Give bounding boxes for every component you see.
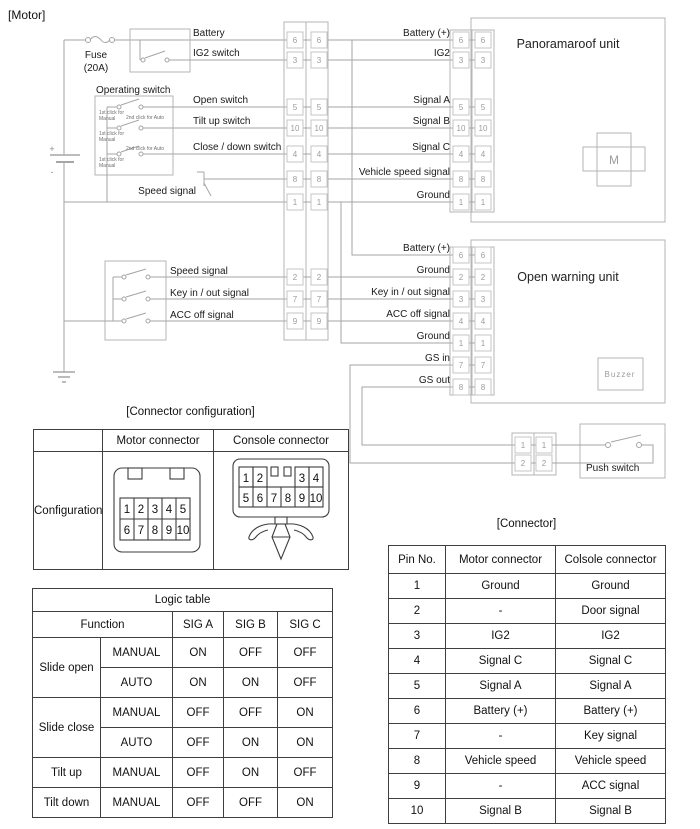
switch-contact-icon xyxy=(117,105,121,109)
click-note: 2nd click for Auto xyxy=(126,146,164,152)
pin-number: 3 xyxy=(481,56,486,65)
function-mode: MANUAL xyxy=(101,638,173,668)
unit-box xyxy=(471,240,665,403)
pin-box xyxy=(287,120,303,136)
table-row: 9-ACC signal xyxy=(389,774,666,799)
pin-box xyxy=(453,269,469,285)
motor-signal: Ground xyxy=(446,574,556,599)
pin-number: 7 xyxy=(317,295,322,304)
push-switch-circuit: 1 1 2 2 Push switch xyxy=(512,424,665,478)
pin-box xyxy=(453,32,469,48)
pin-number: 3 xyxy=(459,56,464,65)
console-connector-header: Colsole connector xyxy=(556,546,666,574)
function-mode: AUTO xyxy=(101,668,173,698)
console-signal: Ground xyxy=(556,574,666,599)
motor-signal: Vehicle speed xyxy=(446,749,556,774)
pin-box xyxy=(453,357,469,373)
sig-c-value: ON xyxy=(278,728,333,758)
pin-box xyxy=(453,335,469,351)
wire-label: Signal A xyxy=(413,95,450,106)
push-switch-label: Push switch xyxy=(586,463,639,474)
sig-a-value: OFF xyxy=(173,698,224,728)
motor-signal: Signal A xyxy=(446,674,556,699)
switch-blade-icon xyxy=(145,51,165,58)
motor-connector-drawing: 1 2 3 4 5 6 7 8 9 10 xyxy=(112,464,204,558)
push-switch-box xyxy=(580,424,665,478)
sig-a-value: OFF xyxy=(173,758,224,788)
pin-box xyxy=(453,146,469,162)
function-group: Slide open xyxy=(33,638,101,698)
pin-number: 2 xyxy=(481,273,486,282)
pin-number: 2 xyxy=(257,473,263,485)
pin-number: 1 xyxy=(317,198,322,207)
wire xyxy=(350,365,515,463)
pin-number: 3 xyxy=(293,56,298,65)
close-down-label: Close / down switch xyxy=(193,142,281,153)
logic-header-sig-a: SIG A xyxy=(173,612,224,638)
click-note: 1st click for xyxy=(99,131,124,137)
console-signal: Key signal xyxy=(556,724,666,749)
sig-c-value: OFF xyxy=(278,668,333,698)
pin-number: 6 xyxy=(317,36,322,45)
wire-label: IG2 xyxy=(434,48,451,59)
click-note: Manual xyxy=(99,163,115,169)
console-connector-drawing: 1 2 3 4 5 6 7 8 9 10 xyxy=(229,457,333,565)
pin-box xyxy=(311,313,327,329)
ig2-switch-box: Battery IG2 switch xyxy=(130,28,287,72)
config-header-console: Console connector xyxy=(214,430,349,452)
unit-title: Panoramaroof unit xyxy=(517,37,620,51)
motor-signal: Signal B xyxy=(446,799,556,824)
switch-blade-icon xyxy=(121,146,139,152)
pin-number: 5 xyxy=(243,493,249,505)
pin-number: 2 xyxy=(459,273,464,282)
motor-signal: - xyxy=(446,774,556,799)
pin-number: 1 xyxy=(459,339,464,348)
logic-table: Logic table Function SIG A SIG B SIG C S… xyxy=(32,588,333,818)
speed-signal-label: Speed signal xyxy=(170,266,228,277)
sig-b-value: ON xyxy=(224,758,278,788)
motor-signal: Battery (+) xyxy=(446,699,556,724)
wire xyxy=(362,387,515,445)
switch-contact-icon xyxy=(122,319,126,323)
pin-number: 9 xyxy=(166,525,172,537)
sig-a-value: OFF xyxy=(173,728,224,758)
pin-number: 8 xyxy=(293,175,298,184)
pin-box xyxy=(311,194,327,210)
pin-box xyxy=(311,291,327,307)
motor-icon xyxy=(597,133,631,186)
sig-c-value: OFF xyxy=(278,638,333,668)
pin-box xyxy=(311,146,327,162)
table-row: 8Vehicle speedVehicle speed xyxy=(389,749,666,774)
pin-number: 1 xyxy=(542,441,547,450)
motor-signal: - xyxy=(446,599,556,624)
pin-box xyxy=(475,32,491,48)
connector-table: Pin No. Motor connector Colsole connecto… xyxy=(388,545,666,824)
switch-contact-icon xyxy=(122,275,126,279)
pin-box xyxy=(311,99,327,115)
table-row: 2-Door signal xyxy=(389,599,666,624)
pin-number: 4 xyxy=(317,150,322,159)
console-signal: Signal A xyxy=(556,674,666,699)
pin-number: 3 xyxy=(299,473,305,485)
console-signal: Vehicle speed xyxy=(556,749,666,774)
pin-number: 2 xyxy=(317,273,322,282)
clip-anchor xyxy=(272,524,290,559)
clip-wing xyxy=(287,523,313,539)
pin-number: 4 xyxy=(459,150,464,159)
pin-number: 6 xyxy=(257,493,263,505)
sig-c-value: OFF xyxy=(278,758,333,788)
wire-label: GS out xyxy=(419,375,450,386)
pin-number: 4 xyxy=(459,317,464,326)
wire-label: Ground xyxy=(417,331,450,342)
connector-shell xyxy=(284,22,306,340)
ig2-wire-label: IG2 switch xyxy=(193,48,240,59)
switch-contact-icon xyxy=(606,443,611,448)
table-row: 5Signal ASignal A xyxy=(389,674,666,699)
click-note: 1st click for xyxy=(99,110,124,116)
clip-wing xyxy=(249,523,275,539)
switch-contact-icon xyxy=(146,297,150,301)
pin-number: 8 xyxy=(459,175,464,184)
pin-number: 5 xyxy=(459,103,464,112)
switch-box xyxy=(130,29,190,72)
pin-box xyxy=(475,120,491,136)
pin-number: 5 xyxy=(481,103,486,112)
pin-number: 9 xyxy=(299,493,305,505)
motor-signal: Signal C xyxy=(446,649,556,674)
pin-box xyxy=(475,357,491,373)
switch-blade-icon xyxy=(611,435,641,442)
click-note: 2nd click for Auto xyxy=(126,115,164,121)
speed-signal-source: Speed signal xyxy=(138,172,287,197)
fuse-rating: (20A) xyxy=(84,63,108,74)
logic-header-sig-b: SIG B xyxy=(224,612,278,638)
pin-box xyxy=(311,52,327,68)
panoramaroof-unit: Panoramaroof unit M 6 6 3 3 5 5 10 10 4 … xyxy=(359,18,665,222)
pin-box xyxy=(287,194,303,210)
sig-b-value: OFF xyxy=(224,788,278,818)
unit-box xyxy=(471,18,665,222)
pin-no: 3 xyxy=(389,624,446,649)
motor-letter: M xyxy=(609,153,619,167)
pin-number: 5 xyxy=(317,103,322,112)
pin-no: 6 xyxy=(389,699,446,724)
pin-no: 9 xyxy=(389,774,446,799)
pin-box xyxy=(311,269,327,285)
logic-header-sig-c: SIG C xyxy=(278,612,333,638)
console-signal: IG2 xyxy=(556,624,666,649)
fuse-label: Fuse xyxy=(85,50,108,61)
battery-wire-label: Battery xyxy=(193,28,225,39)
pin-box xyxy=(287,32,303,48)
tilt-up-label: Tilt up switch xyxy=(193,116,250,127)
pin-no: 8 xyxy=(389,749,446,774)
sig-a-value: OFF xyxy=(173,788,224,818)
speed-signal-label: Speed signal xyxy=(138,186,196,197)
pin-number: 10 xyxy=(291,124,300,133)
pin-box xyxy=(287,52,303,68)
pin-no: 2 xyxy=(389,599,446,624)
pin-number: 2 xyxy=(138,504,144,516)
operating-switch-title: Operating switch xyxy=(96,85,170,96)
harness-wires xyxy=(328,40,515,463)
pin-number: 6 xyxy=(459,36,464,45)
sig-a-value: ON xyxy=(173,638,224,668)
wire-label: Battery (+) xyxy=(403,28,450,39)
console-signal: Signal B xyxy=(556,799,666,824)
motor-icon xyxy=(583,147,645,171)
pin-number: 7 xyxy=(271,493,277,505)
key-in-out-label: Key in / out signal xyxy=(170,288,249,299)
fuse-icon xyxy=(90,37,110,43)
pin-box xyxy=(475,335,491,351)
switch-contact-icon xyxy=(139,126,143,130)
pin-box xyxy=(287,291,303,307)
switch-blade-icon xyxy=(126,291,146,297)
connector-shell xyxy=(306,22,328,340)
wire xyxy=(352,40,453,255)
pin-number: 2 xyxy=(293,273,298,282)
wire xyxy=(341,202,453,343)
housing-tab xyxy=(284,467,291,476)
pin-number: 6 xyxy=(293,36,298,45)
pin-box xyxy=(453,247,469,263)
connector-shell xyxy=(534,433,556,475)
sig-b-value: ON xyxy=(224,668,278,698)
click-note: Manual xyxy=(99,137,115,143)
pin-box xyxy=(453,291,469,307)
pin-box xyxy=(475,247,491,263)
switch-contact-icon xyxy=(122,297,126,301)
wire-label: Ground xyxy=(417,265,450,276)
logic-table-title: Logic table xyxy=(33,589,333,612)
pin-number: 9 xyxy=(317,317,322,326)
pin-box xyxy=(475,291,491,307)
wire-label: Signal C xyxy=(412,142,450,153)
sig-b-value: OFF xyxy=(224,638,278,668)
pin-number: 5 xyxy=(293,103,298,112)
pin-number: 8 xyxy=(285,493,291,505)
switch-contact-icon xyxy=(146,319,150,323)
function-group: Tilt up xyxy=(33,758,101,788)
wire-label: Battery (+) xyxy=(403,243,450,254)
wire-label: GS in xyxy=(425,353,450,364)
switch-contact-icon xyxy=(165,58,169,62)
pin-number: 1 xyxy=(481,339,486,348)
wire xyxy=(552,445,653,463)
pin-number: 6 xyxy=(481,36,486,45)
function-group: Tilt down xyxy=(33,788,101,818)
table-row: 7-Key signal xyxy=(389,724,666,749)
pin-box xyxy=(453,313,469,329)
connector-shell xyxy=(512,433,534,475)
wire-label: Signal B xyxy=(413,116,451,127)
table-row: 3IG2IG2 xyxy=(389,624,666,649)
pin-number: 10 xyxy=(310,493,323,505)
pin-box xyxy=(475,379,491,395)
wire-label: Ground xyxy=(417,190,450,201)
logic-header-function: Function xyxy=(33,612,173,638)
pin-number: 4 xyxy=(481,317,486,326)
pin-box xyxy=(287,99,303,115)
pin-number: 6 xyxy=(124,525,130,537)
pin-number: 3 xyxy=(459,295,464,304)
switch-contact-icon xyxy=(117,152,121,156)
pin-box xyxy=(453,379,469,395)
pin-box xyxy=(287,146,303,162)
pin-no: 7 xyxy=(389,724,446,749)
pin-no: 4 xyxy=(389,649,446,674)
pin-box xyxy=(536,437,552,453)
pin-no: 5 xyxy=(389,674,446,699)
pulse-icon xyxy=(204,183,211,196)
pin-box xyxy=(475,52,491,68)
table-row: 1GroundGround xyxy=(389,574,666,599)
console-switch-box: Speed signal Key in / out signal ACC off… xyxy=(64,261,287,340)
battery-minus-sign: - xyxy=(51,167,54,177)
function-mode: MANUAL xyxy=(101,698,173,728)
pin-number: 1 xyxy=(459,198,464,207)
pin-number: 4 xyxy=(313,473,320,485)
housing-tab xyxy=(271,467,278,476)
sig-a-value: ON xyxy=(173,668,224,698)
switch-contact-icon xyxy=(117,126,121,130)
connector-configuration-table: Motor connector Console connector Config… xyxy=(33,429,349,570)
pin-number: 10 xyxy=(479,124,488,133)
pin-box xyxy=(453,52,469,68)
motor-signal: IG2 xyxy=(446,624,556,649)
pin-number: 10 xyxy=(177,525,190,537)
pin-box xyxy=(475,313,491,329)
table-row: 4Signal CSignal C xyxy=(389,649,666,674)
pin-number: 10 xyxy=(457,124,466,133)
switch-blade-icon xyxy=(126,269,146,275)
pin-no-header: Pin No. xyxy=(389,546,446,574)
pin-number: 3 xyxy=(317,56,322,65)
config-header-empty xyxy=(34,430,103,452)
open-switch-label: Open switch xyxy=(193,95,248,106)
console-signal: ACC signal xyxy=(556,774,666,799)
pin-number: 8 xyxy=(152,525,158,537)
pin-number: 6 xyxy=(459,251,464,260)
switch-contact-icon xyxy=(637,443,642,448)
click-note: Manual xyxy=(99,116,115,122)
connector-configuration-title: [Connector configuration] xyxy=(33,406,348,418)
function-mode: AUTO xyxy=(101,728,173,758)
pin-box xyxy=(453,120,469,136)
console-connector-cell: 1 2 3 4 5 6 7 8 9 10 xyxy=(214,452,349,570)
housing-notch xyxy=(170,468,184,479)
pin-box xyxy=(515,455,531,471)
function-group: Slide close xyxy=(33,698,101,758)
sig-c-value: ON xyxy=(278,698,333,728)
click-note: 1st click for xyxy=(99,157,124,163)
pin-number: 4 xyxy=(293,150,298,159)
pin-number: 3 xyxy=(152,504,158,516)
pin-box xyxy=(453,171,469,187)
pin-box xyxy=(475,194,491,210)
pin-box xyxy=(475,99,491,115)
fuse-icon xyxy=(86,38,91,43)
unit-title: Open warning unit xyxy=(517,270,619,284)
wire-label: Key in / out signal xyxy=(371,287,450,298)
pin-no: 10 xyxy=(389,799,446,824)
page-title: [Motor] xyxy=(8,8,45,22)
pin-box xyxy=(475,171,491,187)
pin-box xyxy=(536,455,552,471)
sig-b-value: OFF xyxy=(224,698,278,728)
connector-table-title: [Connector] xyxy=(388,518,665,530)
pin-number: 8 xyxy=(459,383,464,392)
pin-no: 1 xyxy=(389,574,446,599)
pin-box xyxy=(311,32,327,48)
pin-number: 4 xyxy=(481,150,486,159)
sig-c-value: ON xyxy=(278,788,333,818)
connector-shell xyxy=(450,30,472,212)
pin-number: 3 xyxy=(481,295,486,304)
pin-number: 2 xyxy=(542,459,547,468)
connector-shell xyxy=(472,30,494,212)
trunk-connector: 6 6 3 3 5 5 10 10 4 4 8 8 1 1 2 2 7 7 9 … xyxy=(284,22,328,340)
console-signal: Battery (+) xyxy=(556,699,666,724)
connector-shell xyxy=(472,247,494,395)
pin-box xyxy=(287,269,303,285)
pin-number: 1 xyxy=(521,441,526,450)
switch-box xyxy=(95,96,173,175)
pin-box xyxy=(311,120,327,136)
pin-number: 7 xyxy=(459,361,464,370)
pin-number: 7 xyxy=(481,361,486,370)
connector-shell xyxy=(450,247,472,395)
wire-label: ACC off signal xyxy=(386,309,450,320)
pin-box xyxy=(453,99,469,115)
function-mode: MANUAL xyxy=(101,758,173,788)
fuse-icon xyxy=(110,38,115,43)
switch-blade-icon xyxy=(126,313,146,319)
page: [Motor] + - Fuse (20A) Battery IG2 switc… xyxy=(0,0,700,829)
pin-number: 5 xyxy=(180,504,186,516)
wire-label: Vehicle speed signal xyxy=(359,167,450,178)
pin-box xyxy=(475,269,491,285)
acc-off-label: ACC off signal xyxy=(170,310,234,321)
config-row-label: Configuration xyxy=(34,452,103,570)
motor-signal: - xyxy=(446,724,556,749)
battery-circuit: + - Fuse (20A) xyxy=(49,37,287,383)
clip-neck xyxy=(275,517,287,524)
pin-number: 7 xyxy=(293,295,298,304)
console-signal: Signal C xyxy=(556,649,666,674)
pin-box xyxy=(453,194,469,210)
switch-box xyxy=(105,261,166,340)
switch-contact-icon xyxy=(139,152,143,156)
pin-box xyxy=(311,171,327,187)
motor-connector-cell: 1 2 3 4 5 6 7 8 9 10 xyxy=(103,452,214,570)
buzzer-label: Buzzer xyxy=(605,370,636,379)
pin-box xyxy=(515,437,531,453)
pin-number: 6 xyxy=(481,251,486,260)
switch-contact-icon xyxy=(141,58,145,62)
pin-number: 1 xyxy=(481,198,486,207)
pin-number: 1 xyxy=(124,504,130,516)
pin-box xyxy=(287,313,303,329)
pin-number: 8 xyxy=(481,175,486,184)
switch-contact-icon xyxy=(146,275,150,279)
pin-number: 1 xyxy=(293,198,298,207)
housing-notch xyxy=(128,468,142,479)
